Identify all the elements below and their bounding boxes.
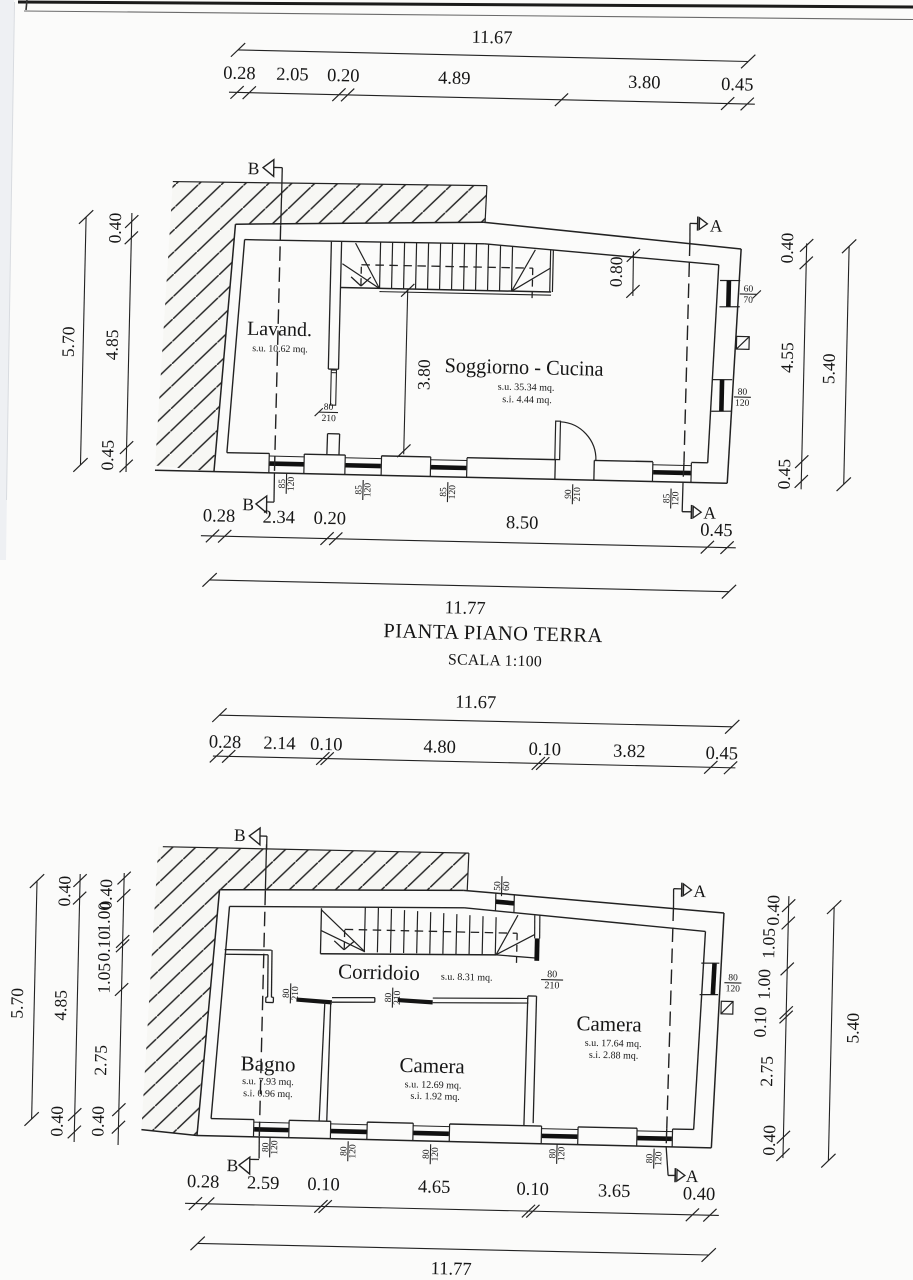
svg-text:1.05: 1.05: [758, 927, 779, 958]
svg-text:0.45: 0.45: [774, 458, 795, 489]
svg-text:0.40: 0.40: [759, 1124, 780, 1155]
svg-text:A: A: [710, 216, 723, 236]
svg-text:60: 60: [502, 881, 512, 891]
svg-text:0.10: 0.10: [516, 1180, 549, 1201]
svg-text:0.45: 0.45: [700, 521, 733, 542]
svg-text:1.05: 1.05: [93, 962, 114, 993]
svg-text:3.80: 3.80: [628, 73, 661, 94]
svg-text:80: 80: [728, 973, 738, 983]
svg-text:0.28: 0.28: [223, 64, 256, 85]
svg-text:70: 70: [743, 296, 753, 306]
svg-text:3.82: 3.82: [613, 742, 646, 763]
svg-text:SCALA 1:100: SCALA 1:100: [448, 651, 543, 670]
svg-text:120: 120: [348, 1144, 358, 1159]
svg-text:5.40: 5.40: [818, 353, 839, 384]
svg-text:5.40: 5.40: [842, 1012, 863, 1043]
svg-text:4.55: 4.55: [777, 342, 798, 373]
svg-text:s.u. 10.62 mq.: s.u. 10.62 mq.: [252, 343, 308, 355]
svg-text:210: 210: [573, 487, 583, 502]
svg-text:11.77: 11.77: [430, 1259, 471, 1280]
svg-text:0.40: 0.40: [777, 232, 798, 263]
svg-text:0.40: 0.40: [87, 1106, 108, 1137]
svg-text:11.67: 11.67: [455, 693, 496, 714]
svg-text:4.85: 4.85: [50, 989, 71, 1020]
svg-text:120: 120: [671, 491, 681, 506]
svg-text:s.u. 35.34 mq.: s.u. 35.34 mq.: [498, 382, 555, 394]
svg-text:120: 120: [735, 399, 750, 409]
svg-text:0.40: 0.40: [763, 894, 784, 925]
svg-text:1.00: 1.00: [754, 969, 775, 1000]
svg-text:s.i. 2.88 mq.: s.i. 2.88 mq.: [589, 1050, 639, 1062]
svg-text:Camera: Camera: [576, 1011, 643, 1036]
svg-text:210: 210: [544, 980, 559, 991]
svg-text:60: 60: [744, 285, 754, 295]
svg-text:B: B: [226, 1155, 238, 1175]
svg-text:3.65: 3.65: [598, 1181, 631, 1202]
svg-text:120: 120: [654, 1151, 664, 1166]
svg-text:0.10: 0.10: [750, 1006, 771, 1037]
svg-text:0.40: 0.40: [54, 875, 75, 906]
svg-text:0.45: 0.45: [97, 439, 118, 470]
svg-text:210: 210: [321, 414, 336, 424]
svg-text:4.80: 4.80: [423, 737, 456, 758]
svg-text:11.77: 11.77: [444, 598, 485, 619]
svg-text:B: B: [247, 158, 259, 178]
svg-text:s.u. 8.31 mq.: s.u. 8.31 mq.: [441, 972, 493, 984]
svg-text:3.80: 3.80: [413, 359, 434, 390]
svg-text:120: 120: [431, 1147, 441, 1162]
svg-text:80: 80: [738, 388, 748, 398]
svg-text:2.34: 2.34: [262, 508, 295, 529]
svg-text:120: 120: [287, 476, 297, 491]
svg-text:210: 210: [393, 990, 403, 1005]
svg-text:0.40: 0.40: [46, 1105, 67, 1136]
svg-text:2.59: 2.59: [247, 1173, 280, 1194]
svg-text:s.i. 4.44 mq.: s.i. 4.44 mq.: [502, 394, 552, 406]
svg-text:1.00: 1.00: [93, 901, 114, 932]
svg-text:4.85: 4.85: [101, 329, 122, 360]
svg-text:2.14: 2.14: [263, 734, 296, 755]
svg-text:0.20: 0.20: [327, 66, 360, 87]
svg-text:120: 120: [270, 1140, 280, 1155]
svg-text:120: 120: [448, 485, 458, 500]
svg-text:11.67: 11.67: [471, 28, 512, 49]
svg-text:5.70: 5.70: [58, 326, 79, 357]
svg-text:Camera: Camera: [399, 1053, 466, 1078]
svg-text:80: 80: [324, 403, 334, 413]
svg-text:8.50: 8.50: [506, 513, 539, 534]
svg-text:0.20: 0.20: [313, 509, 346, 530]
svg-text:0.40: 0.40: [105, 212, 126, 243]
svg-text:s.u. 7.93 mq.: s.u. 7.93 mq.: [242, 1076, 294, 1088]
svg-text:PIANTA PIANO TERRA: PIANTA PIANO TERRA: [383, 620, 603, 647]
svg-text:Lavand.: Lavand.: [247, 318, 312, 341]
svg-text:2.05: 2.05: [276, 65, 309, 86]
svg-text:120: 120: [557, 1146, 567, 1161]
svg-text:120: 120: [363, 483, 373, 498]
svg-text:0.28: 0.28: [187, 1172, 220, 1193]
svg-text:B: B: [242, 494, 254, 514]
svg-text:0.28: 0.28: [203, 506, 236, 527]
svg-text:B: B: [234, 825, 246, 845]
svg-text:2.75: 2.75: [756, 1055, 777, 1086]
svg-text:Corridoio: Corridoio: [338, 959, 420, 985]
svg-text:0.80: 0.80: [606, 256, 627, 287]
svg-text:Soggiorno - Cucina: Soggiorno - Cucina: [444, 353, 604, 381]
svg-text:s.u. 12.69 mq.: s.u. 12.69 mq.: [405, 1079, 462, 1091]
svg-text:0.10: 0.10: [307, 1175, 340, 1196]
svg-text:A: A: [693, 881, 706, 901]
svg-text:4.89: 4.89: [438, 68, 471, 89]
svg-text:120: 120: [726, 984, 741, 994]
svg-text:2.75: 2.75: [90, 1044, 111, 1075]
svg-text:0.28: 0.28: [209, 732, 242, 753]
svg-text:80: 80: [547, 969, 557, 980]
svg-text:4.65: 4.65: [418, 1177, 451, 1198]
svg-text:0.40: 0.40: [683, 1184, 716, 1205]
svg-text:0.10: 0.10: [310, 735, 343, 756]
svg-text:A: A: [686, 1166, 699, 1186]
svg-text:0.45: 0.45: [721, 75, 754, 96]
svg-text:5.70: 5.70: [6, 987, 27, 1018]
svg-text:Bagno: Bagno: [240, 1051, 295, 1076]
svg-text:s.i. 1.92 mq.: s.i. 1.92 mq.: [410, 1091, 460, 1103]
svg-text:s.i. 0.96 mq.: s.i. 0.96 mq.: [243, 1088, 293, 1100]
svg-text:0.10: 0.10: [94, 930, 115, 961]
svg-text:s.u. 17.64 mq.: s.u. 17.64 mq.: [585, 1038, 642, 1050]
svg-text:0.45: 0.45: [705, 744, 738, 765]
